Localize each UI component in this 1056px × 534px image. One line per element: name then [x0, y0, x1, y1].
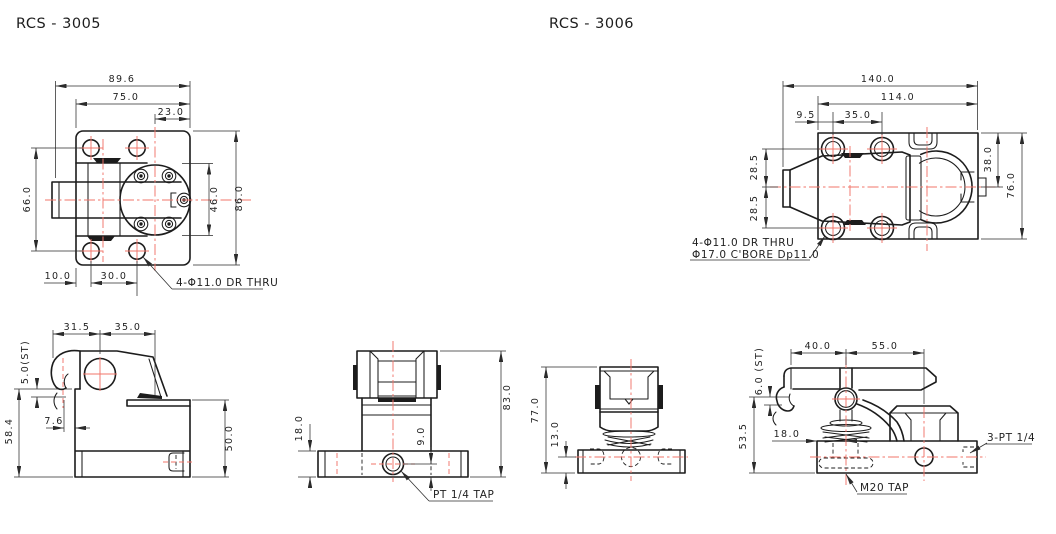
- note-3006-ports: 3-PT 1/4: [987, 432, 1035, 444]
- note-3005-port: PT 1/4 TAP: [433, 489, 494, 501]
- rcs3006-plan-dimensions: [690, 81, 1027, 260]
- dim-3006s-40-0: 40.0: [805, 341, 832, 352]
- title-rcs-3005: RCS - 3005: [16, 16, 101, 32]
- dim-3006s-53-5: 53.5: [738, 423, 749, 450]
- view-rcs3005-plan: 89.6 75.0 23.0 66.0 46.0 86.0 10.0 30.0 …: [22, 74, 278, 296]
- dim-3006-28-5-bot: 28.5: [749, 195, 760, 222]
- dim-3005-30-0: 30.0: [101, 271, 128, 282]
- rcs3006-plan-dim-texts: 140.0 114.0 9.5 35.0 28.5 28.5 38.0 76.0…: [692, 74, 1017, 261]
- view-rcs3005-side: 31.5 35.0 5.0(ST) 58.4 7.6 50.0: [4, 322, 235, 477]
- rcs3005-side-outline: [51, 351, 190, 477]
- rcs3006-front-centerlines: [575, 359, 688, 481]
- note-3006-holes-1: 4-Φ11.0 DR THRU: [692, 237, 794, 249]
- note-3006-tap: M20 TAP: [860, 482, 909, 494]
- note-3005-holes: 4-Φ11.0 DR THRU: [176, 277, 278, 289]
- view-rcs3006-side: 40.0 55.0 6.0 (ST) 53.5 18.0 3-PT 1/4 M2…: [738, 341, 1035, 494]
- dim-3006-140-0: 140.0: [861, 74, 895, 85]
- dim-3005-86-0: 86.0: [234, 185, 245, 212]
- dim-3006-28-5-top: 28.5: [749, 154, 760, 181]
- rcs3005-front-dimensions: [298, 351, 506, 501]
- dim-3006s-55-0: 55.0: [872, 341, 899, 352]
- dim-3005s-31-5: 31.5: [64, 322, 91, 333]
- dim-3005s-58-4: 58.4: [4, 418, 15, 445]
- rcs3006-plan-centerlines: [770, 127, 1000, 251]
- dim-3005s-50-0: 50.0: [224, 425, 235, 452]
- view-rcs3006-plan: 140.0 114.0 9.5 35.0 28.5 28.5 38.0 76.0…: [690, 74, 1027, 261]
- note-3006-holes-2: Φ17.0 C'BORE Dp11.0: [692, 249, 819, 261]
- dim-3005s-7-6: 7.6: [44, 416, 63, 427]
- dim-3005-89-6: 89.6: [109, 74, 136, 85]
- dim-3005-23-0: 23.0: [158, 107, 185, 118]
- dim-3005f-83-0: 83.0: [502, 384, 513, 411]
- dim-3006-38-0: 38.0: [983, 146, 994, 173]
- dim-3005f-18-0: 18.0: [294, 415, 305, 442]
- dim-3006-76-0: 76.0: [1006, 172, 1017, 199]
- dim-3005-75-0: 75.0: [113, 92, 140, 103]
- view-rcs3006-front: 77.0 13.0: [530, 359, 688, 489]
- dim-3006-9-5: 9.5: [796, 110, 815, 121]
- cad-drawing: RCS - 3005 RCS - 3006: [0, 0, 1056, 534]
- dim-3006-114-0: 114.0: [881, 92, 915, 103]
- rcs3005-plan-outline: [52, 131, 191, 265]
- rcs3005-side-dim-texts: 31.5 35.0 5.0(ST) 58.4 7.6 50.0: [4, 322, 235, 451]
- dim-3006s-stroke: 6.0 (ST): [754, 347, 765, 396]
- dim-3006-35-0: 35.0: [845, 110, 872, 121]
- dim-3006f-77-0: 77.0: [530, 397, 541, 424]
- dim-3005s-35-0: 35.0: [115, 322, 142, 333]
- view-rcs3005-front: 18.0 83.0 9.0 PT 1/4 TAP: [294, 341, 513, 501]
- title-rcs-3006: RCS - 3006: [549, 16, 634, 32]
- dim-3006f-13-0: 13.0: [550, 421, 561, 448]
- rcs3006-side-centerlines: [810, 357, 986, 486]
- rcs3006-front-dim-texts: 77.0 13.0: [530, 397, 561, 448]
- dim-3006s-18-0: 18.0: [774, 429, 801, 440]
- dim-3005-66-0: 66.0: [22, 186, 33, 213]
- drawing-sheet: RCS - 3005 RCS - 3006: [0, 0, 1056, 534]
- rcs3006-side-dim-texts: 40.0 55.0 6.0 (ST) 53.5 18.0 3-PT 1/4 M2…: [738, 341, 1035, 494]
- rcs3005-side-centerlines: [63, 357, 195, 462]
- dim-3005-10-0: 10.0: [45, 271, 72, 282]
- dim-3005s-stroke: 5.0(ST): [20, 340, 31, 384]
- dim-3005f-9-0: 9.0: [416, 426, 427, 445]
- dim-3005-46-0: 46.0: [209, 186, 220, 213]
- rcs3005-front-centerlines: [337, 341, 449, 482]
- rcs3005-plan-dimensions: [31, 81, 263, 296]
